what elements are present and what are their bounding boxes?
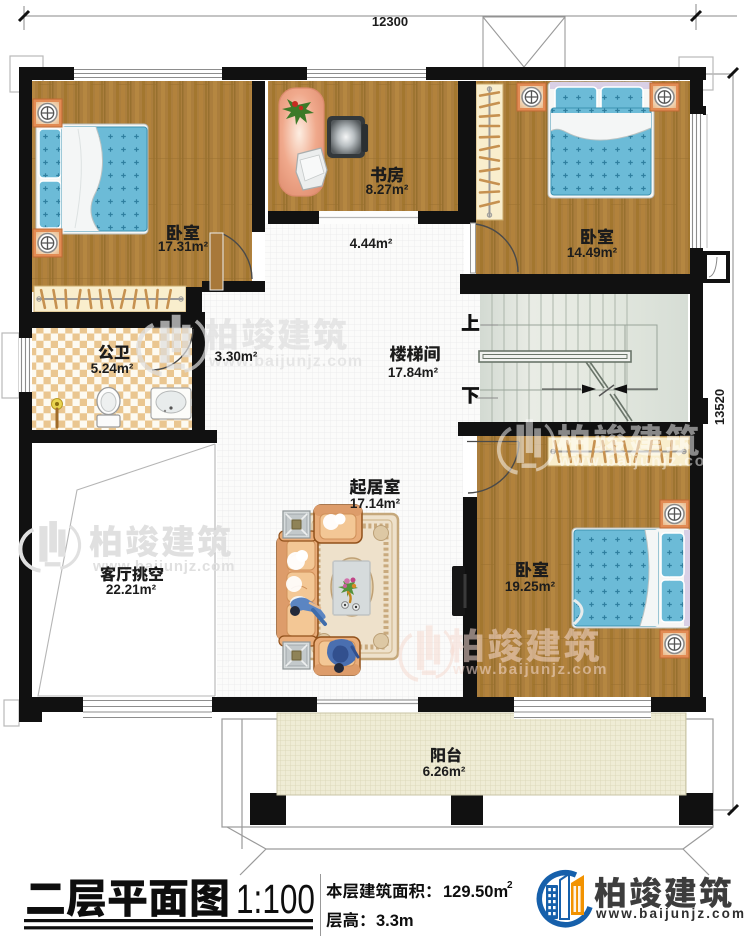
svg-text:5.24m²: 5.24m²	[91, 361, 134, 376]
svg-text:6.26m²: 6.26m²	[423, 764, 466, 779]
svg-text:12300: 12300	[372, 14, 408, 29]
svg-text:4.44m²: 4.44m²	[350, 236, 393, 251]
svg-text:22.21m²: 22.21m²	[106, 582, 157, 597]
svg-text:www.baijunjz.com: www.baijunjz.com	[452, 661, 608, 678]
svg-text:www.baijunjz.com: www.baijunjz.com	[558, 453, 722, 470]
svg-text:17.31m²: 17.31m²	[158, 239, 209, 254]
svg-text:3.30m²: 3.30m²	[215, 349, 258, 364]
svg-text:13520: 13520	[712, 389, 727, 425]
svg-text:2: 2	[507, 880, 513, 891]
svg-text:1:100: 1:100	[236, 876, 315, 922]
svg-text:19.25m²: 19.25m²	[505, 579, 556, 594]
svg-text:www.baijunjz.com: www.baijunjz.com	[595, 906, 746, 921]
svg-text:17.14m²: 17.14m²	[350, 496, 401, 511]
svg-text:17.84m²: 17.84m²	[388, 365, 439, 380]
svg-text:129.50m: 129.50m	[443, 883, 508, 901]
svg-text:14.49m²: 14.49m²	[567, 245, 618, 260]
svg-text:8.27m²: 8.27m²	[366, 182, 409, 197]
svg-text:www.baijunjz.com: www.baijunjz.com	[92, 558, 235, 575]
svg-text:3.3m: 3.3m	[376, 912, 414, 930]
